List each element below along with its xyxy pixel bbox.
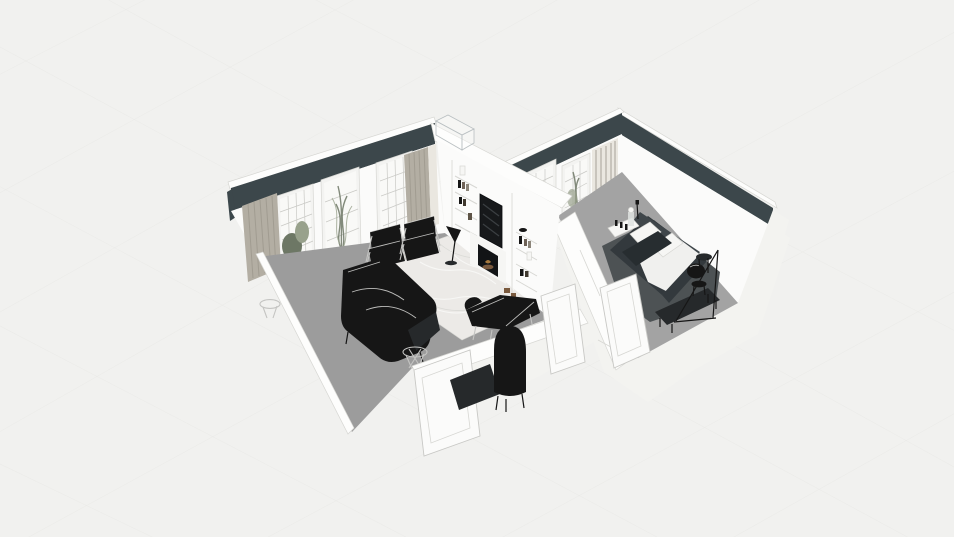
fire-logs xyxy=(483,265,494,270)
white-figurine xyxy=(527,252,532,260)
thin-lamp xyxy=(636,200,640,205)
lamp-shade xyxy=(687,264,705,279)
floorplan-3d-viewport[interactable] xyxy=(0,0,954,537)
dark-bowl xyxy=(519,228,527,232)
vase-flowers xyxy=(628,207,633,212)
glass-vase xyxy=(628,212,634,226)
scene-canvas[interactable] xyxy=(0,0,954,537)
white-vase xyxy=(460,166,465,175)
